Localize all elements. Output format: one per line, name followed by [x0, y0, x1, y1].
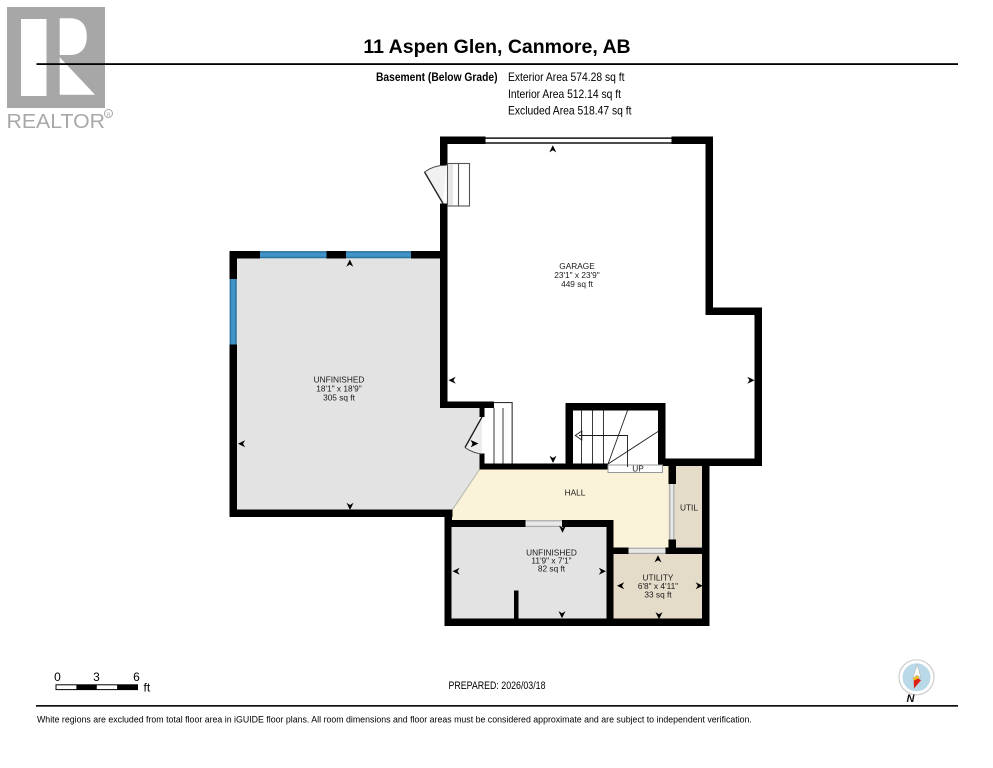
svg-text:R: R	[107, 112, 111, 118]
svg-text:305 sq ft: 305 sq ft	[323, 393, 356, 403]
svg-text:UP: UP	[632, 463, 644, 473]
svg-text:Exterior Area 574.28 sq ft: Exterior Area 574.28 sq ft	[508, 70, 625, 84]
svg-text:Basement (Below Grade): Basement (Below Grade)	[376, 70, 498, 84]
svg-text:Interior Area 512.14 sq ft: Interior Area 512.14 sq ft	[508, 87, 622, 101]
svg-text:6: 6	[133, 670, 140, 684]
svg-text:HALL: HALL	[565, 487, 586, 497]
svg-text:Excluded Area 518.47 sq ft: Excluded Area 518.47 sq ft	[508, 104, 632, 118]
svg-text:3: 3	[93, 670, 100, 684]
svg-text:N: N	[907, 693, 916, 705]
svg-text:449 sq ft: 449 sq ft	[561, 279, 594, 289]
svg-text:82 sq ft: 82 sq ft	[538, 564, 566, 574]
svg-text:33 sq ft: 33 sq ft	[644, 589, 672, 599]
svg-text:ft: ft	[144, 681, 151, 695]
svg-text:11 Aspen Glen, Canmore, AB: 11 Aspen Glen, Canmore, AB	[363, 36, 630, 58]
svg-text:White regions are excluded fro: White regions are excluded from total fl…	[37, 715, 752, 725]
svg-text:REALTOR: REALTOR	[7, 111, 106, 133]
svg-text:UTIL: UTIL	[680, 503, 698, 513]
svg-text:0: 0	[54, 670, 61, 684]
svg-text:PREPARED: 2026/03/18: PREPARED: 2026/03/18	[449, 680, 546, 692]
